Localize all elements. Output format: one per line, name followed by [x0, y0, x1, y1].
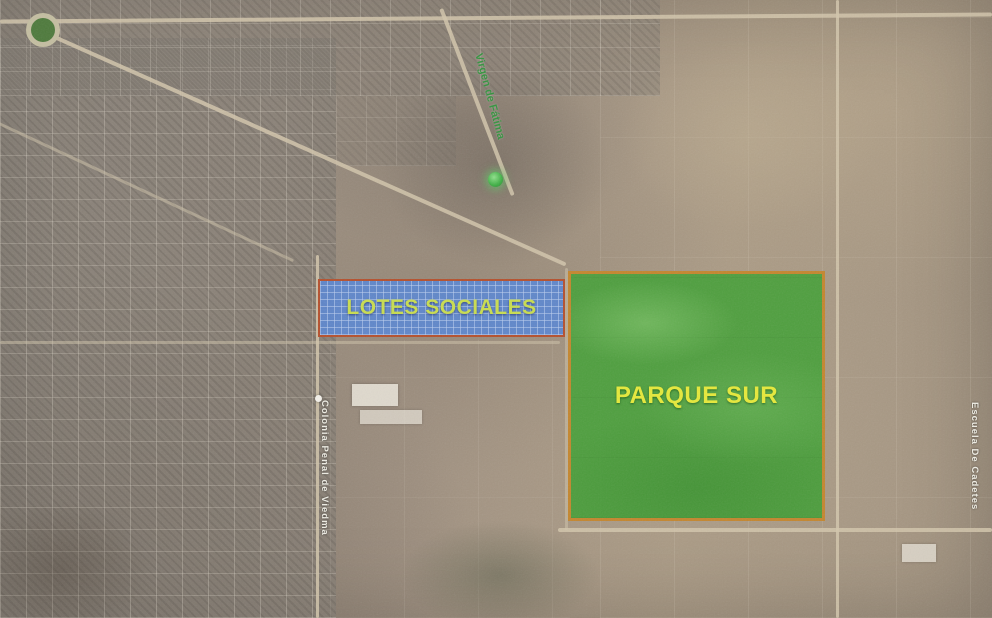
road-label-colonia-penal: Colonia Penal de Viedma [319, 400, 330, 536]
road-vertical-east [836, 0, 839, 618]
road-mid-horizontal [0, 341, 560, 344]
terrain-dark-patch [380, 60, 610, 270]
roundabout [26, 13, 60, 47]
terrain-light-patch [620, 40, 880, 230]
parque-sur-label: PARQUE SUR [615, 382, 778, 410]
scrub-patch-south [400, 520, 600, 618]
road-label-escuela-de-cadetes: Escuela De Cadetes [969, 402, 980, 510]
satellite-map: LOTES SOCIALES PARQUE SUR Virgen de Fáti… [0, 0, 992, 618]
green-place-marker-icon [488, 172, 503, 187]
parque-sur-overlay: PARQUE SUR [568, 271, 825, 521]
white-place-marker-icon [315, 395, 322, 402]
lotes-sociales-overlay: LOTES SOCIALES [318, 279, 565, 337]
lotes-sociales-label: LOTES SOCIALES [346, 296, 536, 320]
road-south-horizontal [558, 528, 992, 532]
facility-building [352, 384, 398, 406]
rural-building [902, 544, 936, 562]
facility-building [360, 410, 422, 424]
